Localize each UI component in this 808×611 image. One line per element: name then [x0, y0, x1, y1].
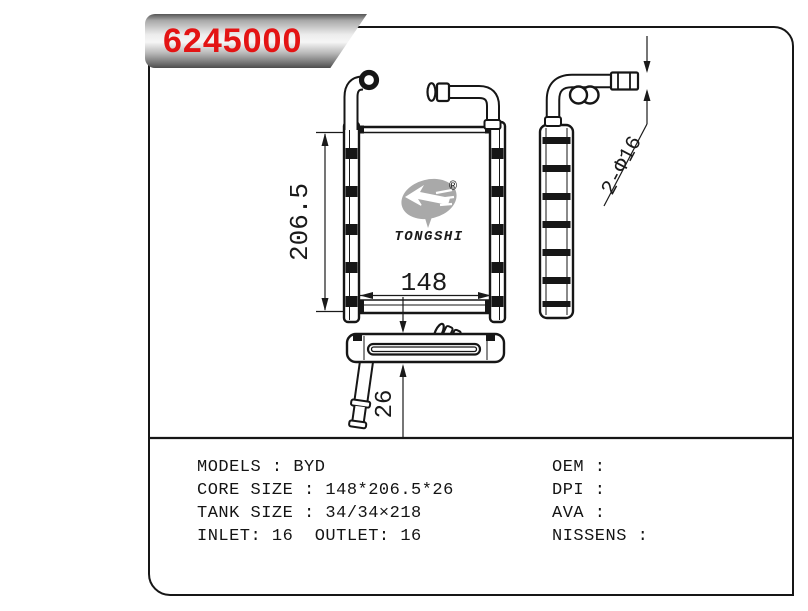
spec-models: MODELS : BYD [197, 458, 325, 477]
part-number: 6245000 [163, 22, 302, 61]
spec-core-size: CORE SIZE : 148*206.5*26 [197, 481, 454, 500]
part-number-banner: 6245000 [145, 14, 367, 68]
catalog-page: 6245000 206.5 [0, 0, 808, 611]
spec-inlet-outlet: INLET: 16 OUTLET: 16 [197, 527, 422, 546]
spec-tank-size: TANK SIZE : 34/34×218 [197, 504, 422, 523]
spec-ava: AVA : [552, 504, 606, 523]
spec-dpi: DPI : [552, 481, 606, 500]
spec-nissens: NISSENS : [552, 527, 648, 546]
spec-oem: OEM : [552, 458, 606, 477]
